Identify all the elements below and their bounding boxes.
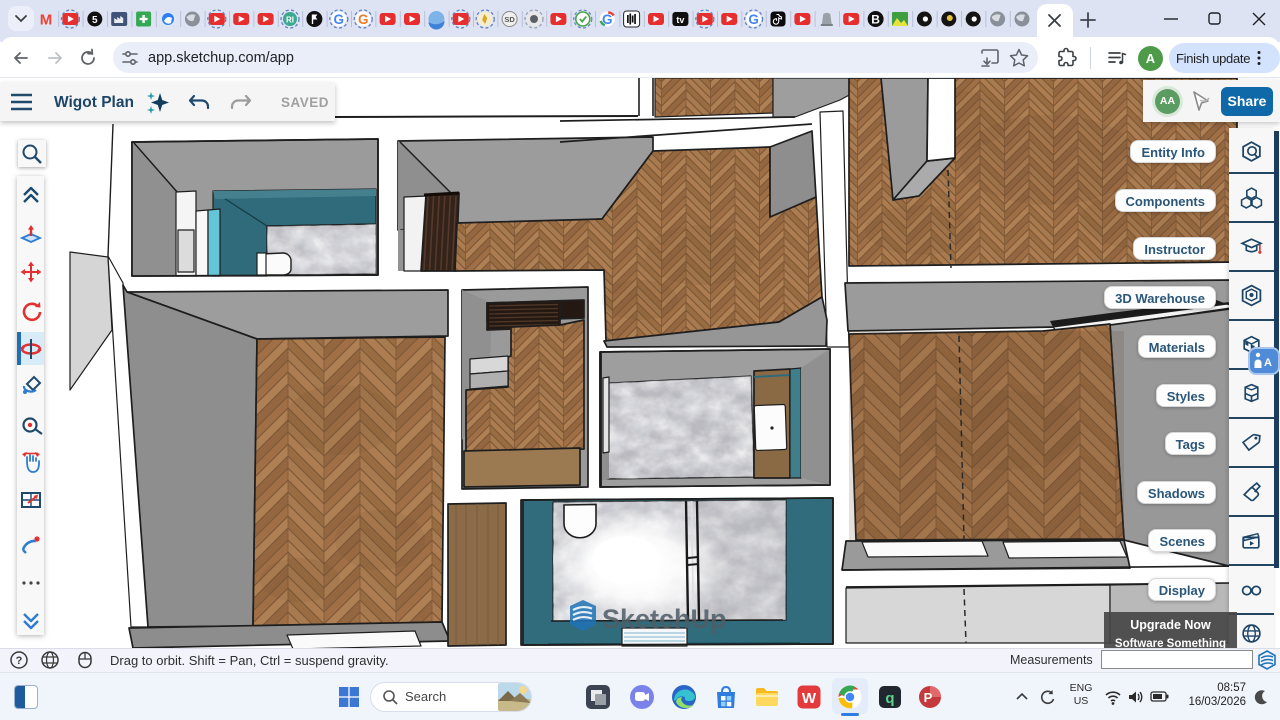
svg-text:M: M: [40, 12, 53, 29]
svg-text:A: A: [1264, 357, 1272, 369]
svg-text:?: ?: [16, 655, 23, 667]
svg-text:W: W: [802, 690, 817, 707]
svg-text:SketchUp: SketchUp: [602, 604, 727, 634]
svg-text:q: q: [885, 690, 894, 707]
svg-text:P: P: [924, 690, 933, 705]
svg-text:RI: RI: [286, 16, 294, 25]
svg-text:B: B: [871, 13, 880, 27]
svg-text:5: 5: [92, 15, 98, 26]
svg-text:G: G: [358, 12, 369, 27]
svg-text:SD: SD: [504, 15, 515, 24]
svg-text:G: G: [748, 12, 759, 27]
svg-text:G: G: [334, 12, 345, 27]
svg-text:tv: tv: [676, 15, 684, 25]
